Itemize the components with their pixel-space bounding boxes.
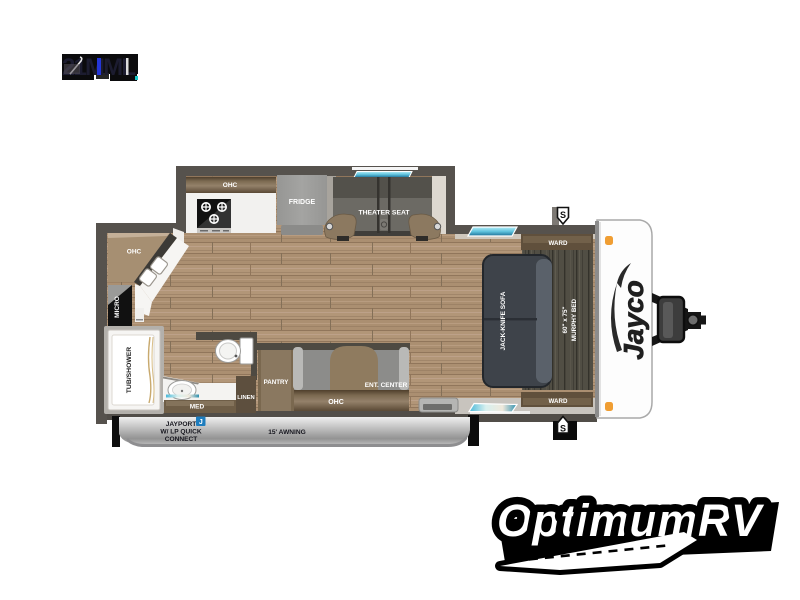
svg-text:JACK-KNIFE SOFA: JACK-KNIFE SOFA — [500, 291, 507, 350]
svg-text:LINEN: LINEN — [237, 395, 254, 401]
svg-text:JAYPORT: JAYPORT — [166, 421, 197, 428]
svg-text:J: J — [199, 419, 203, 426]
svg-text:60" x 75": 60" x 75" — [562, 306, 569, 333]
svg-text:S: S — [560, 424, 566, 434]
svg-text:OHC: OHC — [328, 399, 344, 406]
svg-text:MURPHY BED: MURPHY BED — [571, 298, 578, 341]
svg-text:MICRO: MICRO — [114, 296, 121, 318]
svg-text:MED: MED — [190, 404, 205, 411]
svg-text:OHC: OHC — [223, 182, 238, 189]
svg-text:Jayco: Jayco — [618, 280, 649, 359]
svg-text:WARD: WARD — [549, 398, 568, 405]
svg-text:ENT. CENTER: ENT. CENTER — [365, 382, 408, 389]
svg-text:FRIDGE: FRIDGE — [289, 199, 316, 206]
svg-text:W/ LP QUICK: W/ LP QUICK — [160, 429, 202, 436]
svg-text:OHC: OHC — [127, 249, 142, 256]
svg-text:OptimumRV: OptimumRV — [497, 495, 765, 546]
svg-text:WARD: WARD — [549, 240, 568, 247]
svg-text:PANTRY: PANTRY — [264, 379, 290, 386]
svg-text:S: S — [560, 210, 566, 220]
svg-text:TUB/SHOWER: TUB/SHOWER — [126, 347, 133, 394]
svg-text:THEATER SEAT: THEATER SEAT — [358, 210, 410, 217]
svg-text:15' AWNING: 15' AWNING — [268, 429, 306, 436]
svg-text:CONNECT: CONNECT — [165, 436, 198, 443]
